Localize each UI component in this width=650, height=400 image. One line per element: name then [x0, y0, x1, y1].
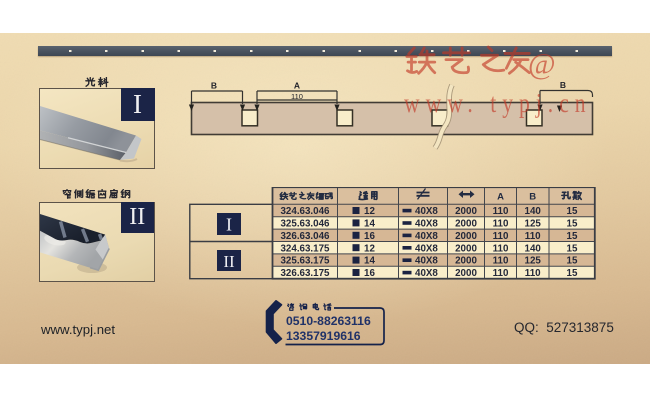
svg-text:324.63.175: 324.63.175: [280, 243, 330, 254]
svg-text:A: A: [294, 81, 300, 91]
svg-text:I: I: [226, 215, 232, 235]
svg-text:2000: 2000: [455, 256, 477, 267]
svg-text:A: A: [497, 191, 504, 202]
svg-text:40X8: 40X8: [415, 256, 438, 267]
svg-text:15: 15: [566, 256, 577, 267]
svg-text:15: 15: [566, 268, 577, 279]
svg-text:110: 110: [524, 268, 540, 279]
svg-text:125: 125: [524, 219, 541, 230]
svg-text:40X8: 40X8: [415, 268, 438, 279]
svg-text:B: B: [529, 191, 536, 202]
svg-text:B: B: [211, 81, 217, 91]
svg-text:110: 110: [492, 219, 508, 230]
svg-text:16: 16: [364, 268, 375, 279]
svg-text:140: 140: [524, 243, 541, 254]
svg-text:14: 14: [364, 256, 375, 267]
svg-text:325.63.046: 325.63.046: [280, 219, 330, 230]
svg-text:12: 12: [364, 243, 375, 254]
svg-text:2000: 2000: [455, 243, 477, 254]
svg-text:15: 15: [566, 243, 577, 254]
svg-text:@: @: [528, 48, 556, 81]
svg-text:110: 110: [492, 206, 508, 217]
svg-text:325.63.175: 325.63.175: [280, 256, 330, 267]
svg-text:40X8: 40X8: [415, 231, 438, 242]
svg-text:125: 125: [524, 256, 541, 267]
svg-text:2000: 2000: [455, 231, 477, 242]
svg-text:110: 110: [291, 92, 303, 101]
svg-text:110: 110: [492, 256, 508, 267]
svg-text:140: 140: [524, 206, 541, 217]
svg-text:2000: 2000: [455, 268, 477, 279]
svg-text:15: 15: [566, 231, 577, 242]
svg-text:0510-88263116: 0510-88263116: [286, 314, 371, 328]
svg-text:II: II: [223, 252, 235, 271]
svg-text:16: 16: [364, 231, 375, 242]
svg-text:326.63.175: 326.63.175: [280, 268, 330, 279]
svg-text:40X8: 40X8: [415, 243, 438, 254]
svg-text:324.63.046: 324.63.046: [280, 206, 330, 217]
svg-text:14: 14: [364, 219, 375, 230]
svg-text:110: 110: [524, 231, 540, 242]
svg-text:326.63.046: 326.63.046: [280, 231, 330, 242]
svg-text:12: 12: [364, 206, 375, 217]
svg-text:2000: 2000: [455, 206, 477, 217]
svg-text:40X8: 40X8: [415, 219, 438, 230]
svg-text:40X8: 40X8: [415, 206, 438, 217]
svg-text:110: 110: [492, 243, 508, 254]
svg-text:13357919616: 13357919616: [286, 329, 361, 343]
svg-text:110: 110: [492, 231, 508, 242]
svg-text:15: 15: [566, 219, 577, 230]
svg-text:110: 110: [492, 268, 508, 279]
svg-text:15: 15: [566, 206, 577, 217]
svg-text:2000: 2000: [455, 219, 477, 230]
